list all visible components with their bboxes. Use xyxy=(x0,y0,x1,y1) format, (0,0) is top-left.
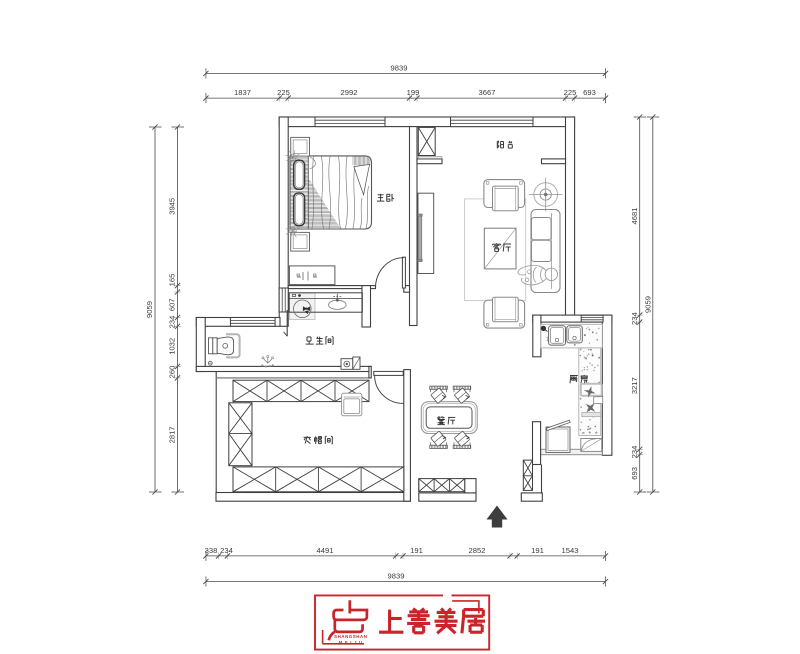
svg-text:234: 234 xyxy=(630,312,639,325)
svg-text:693: 693 xyxy=(583,88,596,97)
svg-text:225: 225 xyxy=(564,88,577,97)
svg-text:2817: 2817 xyxy=(168,426,177,443)
svg-text:2992: 2992 xyxy=(341,88,358,97)
svg-text:3667: 3667 xyxy=(479,88,496,97)
svg-text:M E I J U: M E I J U xyxy=(339,640,363,645)
svg-text:4681: 4681 xyxy=(630,208,639,225)
svg-text:1837: 1837 xyxy=(234,88,251,97)
svg-text:338: 338 xyxy=(205,546,218,555)
svg-text:191: 191 xyxy=(531,546,544,555)
svg-text:2852: 2852 xyxy=(469,546,486,555)
svg-text:260: 260 xyxy=(168,366,177,379)
svg-text:1032: 1032 xyxy=(168,338,177,355)
svg-text:3945: 3945 xyxy=(168,198,177,215)
svg-text:4491: 4491 xyxy=(317,546,334,555)
svg-text:SHANGSHAN: SHANGSHAN xyxy=(334,634,367,639)
svg-text:1543: 1543 xyxy=(562,546,579,555)
svg-text:9839: 9839 xyxy=(388,572,405,581)
svg-text:234: 234 xyxy=(168,316,177,329)
svg-text:693: 693 xyxy=(630,467,639,480)
svg-text:3217: 3217 xyxy=(630,377,639,394)
svg-text:199: 199 xyxy=(407,88,420,97)
svg-text:9059: 9059 xyxy=(643,296,652,313)
svg-text:165: 165 xyxy=(168,274,177,287)
svg-text:9839: 9839 xyxy=(391,64,408,73)
svg-text:234: 234 xyxy=(220,546,233,555)
svg-text:9059: 9059 xyxy=(145,301,154,318)
svg-text:191: 191 xyxy=(410,546,423,555)
svg-text:234: 234 xyxy=(630,446,639,459)
svg-text:225: 225 xyxy=(277,88,290,97)
svg-text:607: 607 xyxy=(168,298,177,311)
